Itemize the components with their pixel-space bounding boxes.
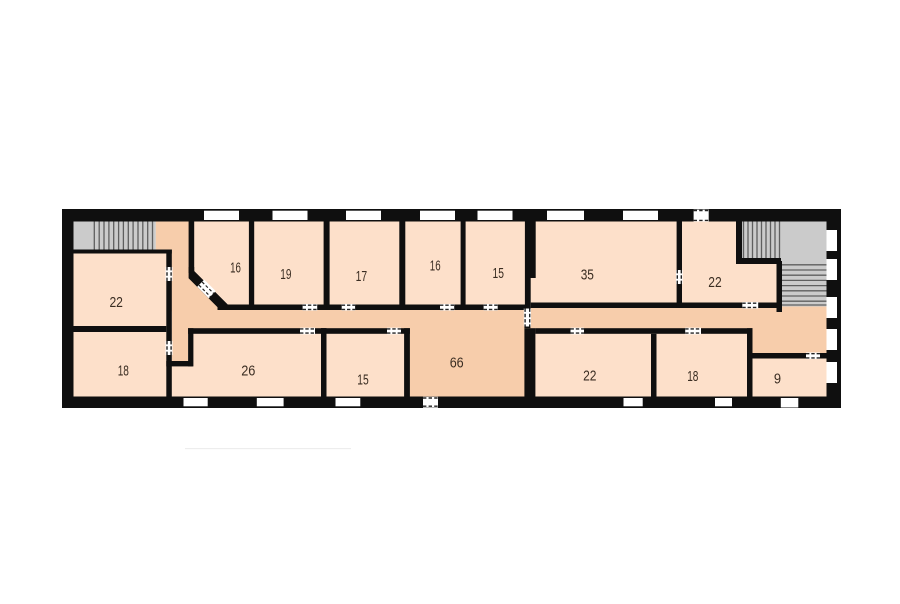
- svg-text:15: 15: [357, 372, 368, 389]
- svg-text:16: 16: [430, 257, 441, 274]
- svg-text:17: 17: [356, 268, 368, 285]
- svg-text:18: 18: [118, 363, 129, 380]
- svg-text:22: 22: [109, 294, 123, 311]
- svg-text:26: 26: [241, 362, 255, 379]
- svg-text:35: 35: [581, 266, 594, 283]
- svg-text:22: 22: [708, 274, 721, 291]
- svg-text:15: 15: [493, 265, 504, 282]
- svg-text:22: 22: [583, 367, 596, 384]
- svg-text:19: 19: [280, 266, 291, 283]
- svg-text:66: 66: [450, 355, 464, 372]
- svg-text:16: 16: [230, 259, 241, 276]
- svg-text:18: 18: [687, 368, 698, 385]
- svg-text:9: 9: [774, 370, 781, 387]
